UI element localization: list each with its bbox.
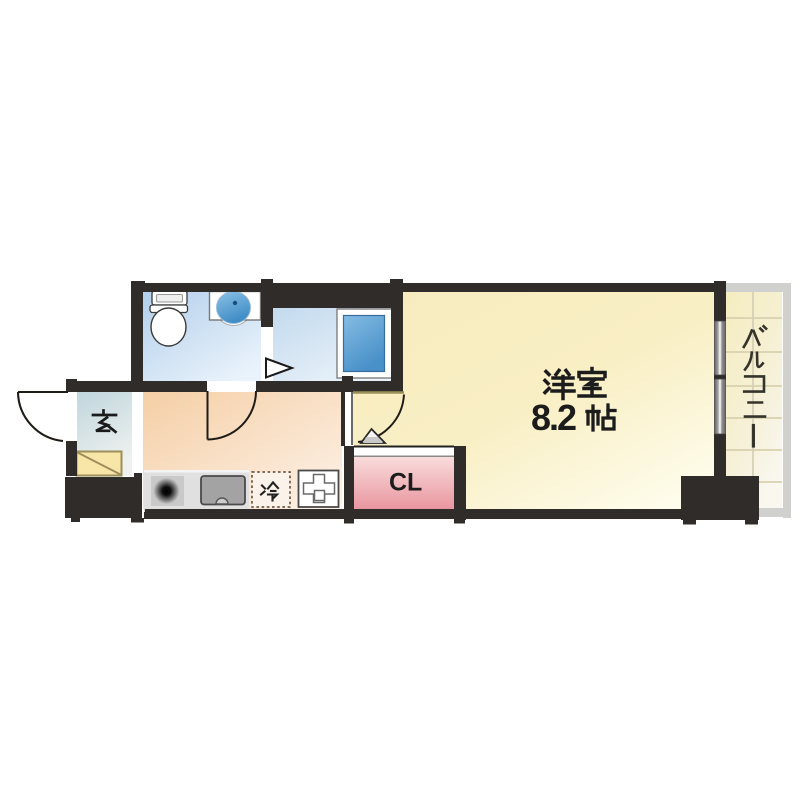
svg-text:8.2: 8.2 <box>531 397 577 438</box>
svg-text:CL: CL <box>389 469 422 497</box>
